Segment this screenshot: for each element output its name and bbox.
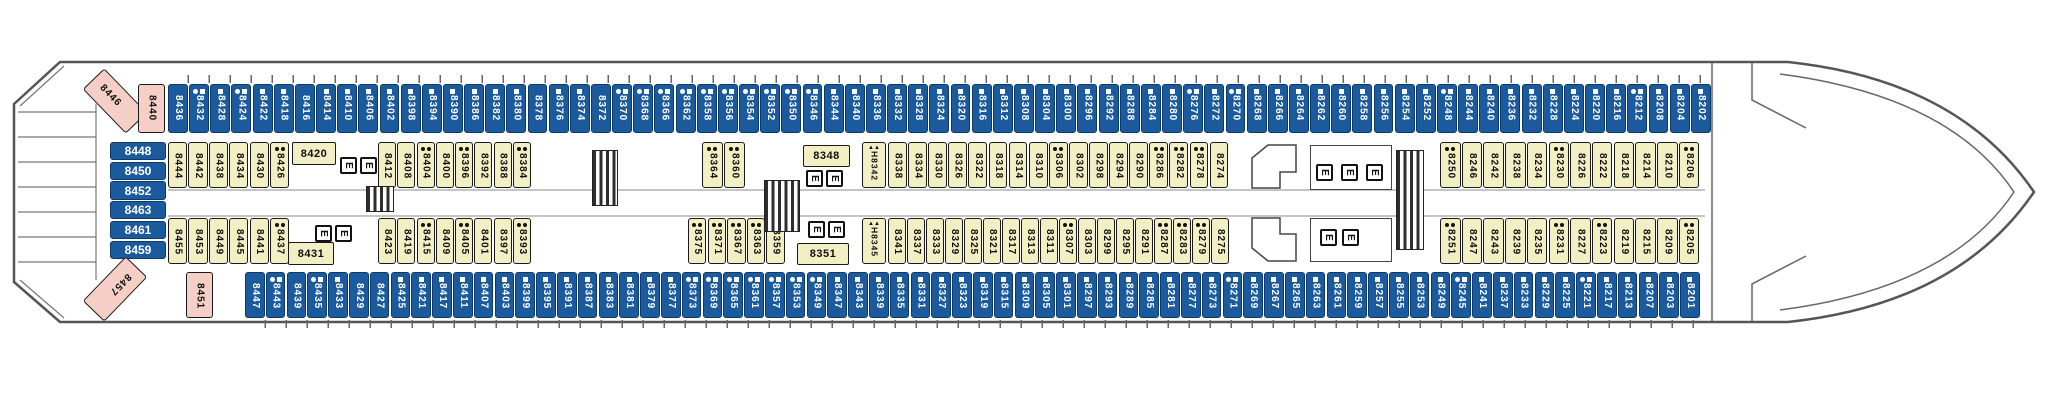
cabin-number: 8363 <box>751 229 761 263</box>
cabin-8333: 8333 <box>926 218 944 264</box>
cabin-8459: 8459 <box>110 241 166 259</box>
cabin-number: 8374 <box>575 95 585 132</box>
cabin-number: 8400 <box>440 153 450 187</box>
cabin-8388: 8388 <box>494 142 512 188</box>
cabin-8448: 8448 <box>110 142 166 160</box>
cabin-8433: 8433 <box>328 272 348 318</box>
cabin-8384: 8384 <box>513 142 531 188</box>
cabin-number: 8364 <box>707 153 717 187</box>
cabin-8209: 8209 <box>1657 218 1678 264</box>
cabin-number: 8371 <box>712 229 722 263</box>
cabin-8372: 8372 <box>591 84 611 133</box>
cabin-number: 8325 <box>968 229 978 263</box>
cabin-8325: 8325 <box>964 218 982 264</box>
cabin-number: 8316 <box>977 95 987 132</box>
cabin-number: 8396 <box>459 153 469 187</box>
cabin-8401: 8401 <box>474 218 492 264</box>
cabin-8201: 8201 <box>1680 272 1700 318</box>
cabin-8324: 8324 <box>929 84 949 133</box>
elevator-label: E <box>809 175 820 182</box>
cabin-number: 8369 <box>707 283 717 317</box>
cabin-number: 8386 <box>469 95 479 132</box>
cabin-number: 8426 <box>275 153 285 187</box>
cabin-8262: 8262 <box>1310 84 1330 133</box>
cabin-8346: 8346 <box>803 84 823 133</box>
cabin-8338: 8338 <box>888 142 907 188</box>
cabin-8272: 8272 <box>1204 84 1224 133</box>
cabin-8290: 8290 <box>1129 142 1148 188</box>
cabin-8240: 8240 <box>1479 84 1499 133</box>
cabin-number: 8365 <box>728 283 738 317</box>
cabin-8268: 8268 <box>1247 84 1267 133</box>
cabin-number: 8219 <box>1619 229 1629 263</box>
cabin-8293: 8293 <box>1098 272 1118 318</box>
cabin-number: 8420 <box>301 148 327 160</box>
cabin-8277: 8277 <box>1181 272 1201 318</box>
cabin-number: 8269 <box>1248 283 1258 317</box>
cabin-number: 8330 <box>933 153 943 187</box>
cabin-8261: 8261 <box>1327 272 1347 318</box>
cabin-number: 8333 <box>930 229 940 263</box>
cabin-8315: 8315 <box>994 272 1014 318</box>
cabin-number: 8340 <box>850 95 860 132</box>
cabin-number: 8280 <box>1167 95 1177 132</box>
cabin-number: 8380 <box>511 95 521 132</box>
elevator-label: E <box>1344 169 1355 176</box>
cabin-8202: 8202 <box>1691 84 1711 133</box>
cabin-number: 8353 <box>791 283 801 317</box>
elevator-label: E <box>811 226 822 233</box>
cabin-8363: 8363 <box>747 218 765 264</box>
cabin-number: 8306 <box>1053 153 1063 187</box>
cabin-8376: 8376 <box>549 84 569 133</box>
cabin-number: 8223 <box>1597 229 1607 263</box>
cabin-number: 8370 <box>617 95 627 132</box>
cabin-8398: 8398 <box>401 84 421 133</box>
cabin-number: 8210 <box>1662 153 1672 187</box>
cabin-8365: 8365 <box>723 272 743 318</box>
cabin-8371: 8371 <box>708 218 726 264</box>
cabin-8447: 8447 <box>245 272 265 318</box>
cabin-number: 8447 <box>250 283 260 317</box>
elevator-icon: E <box>1366 164 1383 181</box>
cabin-number: 8272 <box>1209 95 1219 132</box>
cabin-number: 8347 <box>832 283 842 317</box>
cabin-number: 8406 <box>363 95 373 132</box>
cabin-number: 8251 <box>1445 229 1455 263</box>
cabin-number: 8393 <box>517 229 527 263</box>
cabin-number: 8302 <box>1073 153 1083 187</box>
cabin-number: 8235 <box>1532 229 1542 263</box>
cabin-8287: 8287 <box>1154 218 1172 264</box>
cabin-number: 8352 <box>765 95 775 132</box>
cabin-number: 8287 <box>1158 229 1168 263</box>
cabin-number: 8220 <box>1590 95 1600 132</box>
cabin-8274: 8274 <box>1210 142 1229 188</box>
cabin-8238: 8238 <box>1505 142 1526 188</box>
cabin-number: 8425 <box>395 283 405 317</box>
cabin-number: 8238 <box>1510 153 1520 187</box>
cabin-8214: 8214 <box>1635 142 1656 188</box>
stairs-icon <box>1396 150 1424 250</box>
cabin-8298: 8298 <box>1089 142 1108 188</box>
cabin-number: 8449 <box>213 229 223 263</box>
cabin-number: 8384 <box>517 153 527 187</box>
cabin-8450: 8450 <box>110 162 166 180</box>
cabin-8309: 8309 <box>1015 272 1035 318</box>
cabin-number: 8414 <box>321 95 331 132</box>
cabin-number: 8208 <box>1653 95 1663 132</box>
cabin-number: 8416 <box>300 95 310 132</box>
cabin-number: 8397 <box>498 229 508 263</box>
cabin-number: 8328 <box>913 95 923 132</box>
elevator-icon: E <box>806 170 823 187</box>
cabin-number: 8215 <box>1641 229 1651 263</box>
cabin-8228: 8228 <box>1543 84 1563 133</box>
cabin-number: 8329 <box>949 229 959 263</box>
cabin-number: 8390 <box>448 95 458 132</box>
cabin-number: 8314 <box>1013 153 1023 187</box>
cabin-number: 8322 <box>973 153 983 187</box>
cabin-number: H8345 <box>870 227 879 263</box>
cabin-number: 8260 <box>1336 95 1346 132</box>
cabin-number: 8249 <box>1435 283 1445 317</box>
cabin-8308: 8308 <box>1014 84 1034 133</box>
cabin-number: 8335 <box>895 283 905 317</box>
cabin-8360: 8360 <box>724 142 745 188</box>
elevator-label: E <box>363 162 374 169</box>
cabin-number: 8248 <box>1442 95 1452 132</box>
cabin-8229: 8229 <box>1535 272 1555 318</box>
cabin-8334: 8334 <box>908 142 927 188</box>
cabin-number: 8227 <box>1575 229 1585 263</box>
cabin-8221: 8221 <box>1576 272 1596 318</box>
cabin-8379: 8379 <box>640 272 660 318</box>
cabin-8220: 8220 <box>1585 84 1605 133</box>
cabin-8443: 8443 <box>266 272 286 318</box>
cabin-number: 8403 <box>499 283 509 317</box>
cabin-8339: 8339 <box>869 272 889 318</box>
cabin-number: 8321 <box>987 229 997 263</box>
cabin-8226: 8226 <box>1570 142 1591 188</box>
cabin-8299: 8299 <box>1097 218 1115 264</box>
cabin-8258: 8258 <box>1352 84 1372 133</box>
cabin-8248: 8248 <box>1437 84 1457 133</box>
cabin-8296: 8296 <box>1077 84 1097 133</box>
cabin-8391: 8391 <box>557 272 577 318</box>
cabin-8242: 8242 <box>1483 142 1504 188</box>
cabin-number: 8206 <box>1684 153 1694 187</box>
cabin-number: 8450 <box>125 164 152 178</box>
cabin-8354: 8354 <box>739 84 759 133</box>
cabin-number: 8291 <box>1139 229 1149 263</box>
elevator-icon: E <box>828 221 845 238</box>
cabin-8373: 8373 <box>682 272 702 318</box>
cabin-8271: 8271 <box>1223 272 1243 318</box>
cabin-number: 8298 <box>1093 153 1103 187</box>
cabin-number: 8313 <box>1025 229 1035 263</box>
cabin-8316: 8316 <box>972 84 992 133</box>
cabin-8300: 8300 <box>1056 84 1076 133</box>
cabin-number: 8373 <box>687 283 697 317</box>
cabin-8320: 8320 <box>951 84 971 133</box>
cabin-number: 8261 <box>1331 283 1341 317</box>
cabin-number: 8246 <box>1467 153 1477 187</box>
cabin-number: 8275 <box>1215 229 1225 263</box>
cabin-number: 8415 <box>421 229 431 263</box>
cabin-8438: 8438 <box>209 142 228 188</box>
cabin-number: 8398 <box>406 95 416 132</box>
cabin-number: 8317 <box>1006 229 1016 263</box>
cabin-8232: 8232 <box>1522 84 1542 133</box>
cabin-number: 8309 <box>1019 283 1029 317</box>
cabin-number: 8391 <box>562 283 572 317</box>
cabin-number: 8231 <box>1554 229 1564 263</box>
cabin-number: 8394 <box>427 95 437 132</box>
cabin-8312: 8312 <box>993 84 1013 133</box>
cabin-8336: 8336 <box>866 84 886 133</box>
cabin-8348: 8348 <box>803 145 850 167</box>
cabin-number: 8214 <box>1641 153 1651 187</box>
cabin-number: 8341 <box>892 229 902 263</box>
cabin-8239: 8239 <box>1505 218 1526 264</box>
cabin-8416: 8416 <box>295 84 315 133</box>
cabin-number: 8239 <box>1510 229 1520 263</box>
cabin-8451: 8451 <box>186 272 213 318</box>
cabin-number: 8243 <box>1489 229 1499 263</box>
cabin-8280: 8280 <box>1162 84 1182 133</box>
cabin-number: 8244 <box>1463 95 1473 132</box>
cabin-8326: 8326 <box>948 142 967 188</box>
cabin-8285: 8285 <box>1139 272 1159 318</box>
cabin-number: 8292 <box>1104 95 1114 132</box>
balcony-dividers-top <box>168 75 1712 83</box>
cabin-number: 8259 <box>1352 283 1362 317</box>
cabin-number: 8209 <box>1662 229 1672 263</box>
cabin-8411: 8411 <box>453 272 473 318</box>
cabin-number: 8218 <box>1619 153 1629 187</box>
cabin-8463: 8463 <box>110 201 166 219</box>
cabin-8381: 8381 <box>619 272 639 318</box>
cabin-number: 8240 <box>1484 95 1494 132</box>
cabin-number: 8254 <box>1400 95 1410 132</box>
cabin-number: 8383 <box>603 283 613 317</box>
cabin-8204: 8204 <box>1670 84 1690 133</box>
cabin-number: 8319 <box>978 283 988 317</box>
cabin-8282: 8282 <box>1169 142 1188 188</box>
cabin-number: 8205 <box>1684 229 1694 263</box>
cabin-8357: 8357 <box>765 272 785 318</box>
cabin-8350: 8350 <box>781 84 801 133</box>
cabin-number: 8274 <box>1214 153 1224 187</box>
cabin-8302: 8302 <box>1069 142 1088 188</box>
cabin-number: 8411 <box>458 283 468 317</box>
cabin-number: H8342 <box>870 151 879 187</box>
cabin-number: 8237 <box>1498 283 1508 317</box>
cabin-number: 8409 <box>440 229 450 263</box>
cabin-number: 8267 <box>1269 283 1279 317</box>
cabin-number: 8357 <box>770 283 780 317</box>
cabin-8314: 8314 <box>1009 142 1028 188</box>
cabin-8275: 8275 <box>1211 218 1229 264</box>
cabin-8328: 8328 <box>908 84 928 133</box>
cabin-number: 8430 <box>254 153 264 187</box>
cabin-8453: 8453 <box>188 218 207 264</box>
elevator-icon: E <box>1342 229 1359 246</box>
cabin-number: 8359 <box>771 229 781 263</box>
cabin-number: 8356 <box>723 95 733 132</box>
cabin-8414: 8414 <box>316 84 336 133</box>
cabin-number: 8285 <box>1144 283 1154 317</box>
cabin-number: 8217 <box>1602 283 1612 317</box>
cabin-8366: 8366 <box>654 84 674 133</box>
cabin-8415: 8415 <box>417 218 435 264</box>
cabin-number: 8388 <box>498 153 508 187</box>
cabin-8259: 8259 <box>1347 272 1367 318</box>
cabin-number: 8367 <box>731 229 741 263</box>
cabin-number: 8262 <box>1315 95 1325 132</box>
cabin-number: 8334 <box>913 153 923 187</box>
cabin-8442: 8442 <box>188 142 207 188</box>
cabin-8369: 8369 <box>703 272 723 318</box>
cabin-number: 8230 <box>1554 153 1564 187</box>
cabin-number: 8421 <box>416 283 426 317</box>
cabin-number: 8245 <box>1456 283 1466 317</box>
cabin-8269: 8269 <box>1243 272 1263 318</box>
cabin-8449: 8449 <box>209 218 228 264</box>
cabin-number: 8354 <box>744 95 754 132</box>
cabin-number: 8405 <box>459 229 469 263</box>
cabin-number: 8429 <box>354 283 364 317</box>
cabin-8266: 8266 <box>1268 84 1288 133</box>
cabin-number: 8212 <box>1632 95 1642 132</box>
cabin-8341: 8341 <box>888 218 906 264</box>
cabin-8288: 8288 <box>1120 84 1140 133</box>
cabin-8377: 8377 <box>661 272 681 318</box>
cabin-8208: 8208 <box>1649 84 1669 133</box>
cabin-8396: 8396 <box>455 142 473 188</box>
cabin-8311: 8311 <box>1040 218 1058 264</box>
cabin-8397: 8397 <box>494 218 512 264</box>
cabin-number: 8216 <box>1611 95 1621 132</box>
cabin-number: 8437 <box>275 229 285 263</box>
cabin-number: 8201 <box>1685 283 1695 317</box>
cabin-8215: 8215 <box>1635 218 1656 264</box>
cabin-number: 8315 <box>999 283 1009 317</box>
cabin-number: 8284 <box>1146 95 1156 132</box>
cabin-8223: 8223 <box>1592 218 1613 264</box>
cabin-8375: 8375 <box>688 218 706 264</box>
cabin-8206: 8206 <box>1679 142 1700 188</box>
cabin-8283: 8283 <box>1173 218 1191 264</box>
cabin-number: 8419 <box>401 229 411 263</box>
cabin-8243: 8243 <box>1483 218 1504 264</box>
cabin-number: 8265 <box>1290 283 1300 317</box>
cabin-8427: 8427 <box>370 272 390 318</box>
cabin-8403: 8403 <box>495 272 515 318</box>
cabin-number: 8348 <box>813 150 839 162</box>
cabin-8295: 8295 <box>1116 218 1134 264</box>
cabin-8235: 8235 <box>1527 218 1548 264</box>
cabin-8410: 8410 <box>337 84 357 133</box>
cabin-number: 8279 <box>1196 229 1206 263</box>
cabin-8222: 8222 <box>1592 142 1613 188</box>
cabin-8387: 8387 <box>578 272 598 318</box>
cabin-number: 8339 <box>874 283 884 317</box>
cabin-8257: 8257 <box>1368 272 1388 318</box>
cabin-number: 8448 <box>125 144 152 158</box>
cabin-number: 8332 <box>892 95 902 132</box>
cabin-number: 8299 <box>1101 229 1111 263</box>
elevator-label: E <box>338 230 349 237</box>
cabin-8439: 8439 <box>287 272 307 318</box>
cabin-H8345: ▲▲H8345 <box>862 218 886 264</box>
cabin-8394: 8394 <box>422 84 442 133</box>
cabin-8417: 8417 <box>432 272 452 318</box>
cabin-8361: 8361 <box>744 272 764 318</box>
cabin-number: 8399 <box>520 283 530 317</box>
cabin-8347: 8347 <box>827 272 847 318</box>
cabin-8327: 8327 <box>931 272 951 318</box>
cabin-number: 8318 <box>993 153 1003 187</box>
cabin-8386: 8386 <box>464 84 484 133</box>
elevator-icon: E <box>315 225 332 242</box>
cabin-number: 8358 <box>702 95 712 132</box>
cabin-8233: 8233 <box>1514 272 1534 318</box>
cabin-8409: 8409 <box>436 218 454 264</box>
cabin-number: 8422 <box>258 95 268 132</box>
elevator-icon: E <box>808 221 825 238</box>
cabin-number: 8250 <box>1445 153 1455 187</box>
cabin-number: 8301 <box>1061 283 1071 317</box>
cabin-8256: 8256 <box>1374 84 1394 133</box>
cabin-8319: 8319 <box>973 272 993 318</box>
cabin-number: 8433 <box>333 283 343 317</box>
cabin-8279: 8279 <box>1192 218 1210 264</box>
cabin-8224: 8224 <box>1564 84 1584 133</box>
cabin-number: 8264 <box>1294 95 1304 132</box>
deck-plan: 8436843284288424842284188416841484108406… <box>0 0 2048 409</box>
cabin-8241: 8241 <box>1472 272 1492 318</box>
cabin-number: 8438 <box>213 153 223 187</box>
elevator-icon: E <box>335 225 352 242</box>
elevator-icon: E <box>340 157 357 174</box>
cabin-8422: 8422 <box>253 84 273 133</box>
cabin-number: 8382 <box>490 95 500 132</box>
cabin-number: 8293 <box>1103 283 1113 317</box>
cabin-8234: 8234 <box>1527 142 1548 188</box>
cabin-number: 8320 <box>956 95 966 132</box>
cabin-number: 8436 <box>173 95 183 132</box>
cabin-8265: 8265 <box>1285 272 1305 318</box>
cabin-8461: 8461 <box>110 221 166 239</box>
cabin-number: 8351 <box>810 248 836 260</box>
cabin-8395: 8395 <box>536 272 556 318</box>
cabin-8230: 8230 <box>1549 142 1570 188</box>
cabin-8408: 8408 <box>397 142 415 188</box>
cabin-8213: 8213 <box>1618 272 1638 318</box>
elevator-label: E <box>1323 234 1334 241</box>
cabin-8436: 8436 <box>168 84 188 133</box>
cabin-8362: 8362 <box>676 84 696 133</box>
cabin-8323: 8323 <box>952 272 972 318</box>
elevator-icon: E <box>1341 164 1358 181</box>
cabin-8244: 8244 <box>1458 84 1478 133</box>
cabin-8212: 8212 <box>1627 84 1647 133</box>
cabin-number: 8286 <box>1154 153 1164 187</box>
cabin-8431: 8431 <box>288 242 334 265</box>
cabin-number: 8303 <box>1082 229 1092 263</box>
